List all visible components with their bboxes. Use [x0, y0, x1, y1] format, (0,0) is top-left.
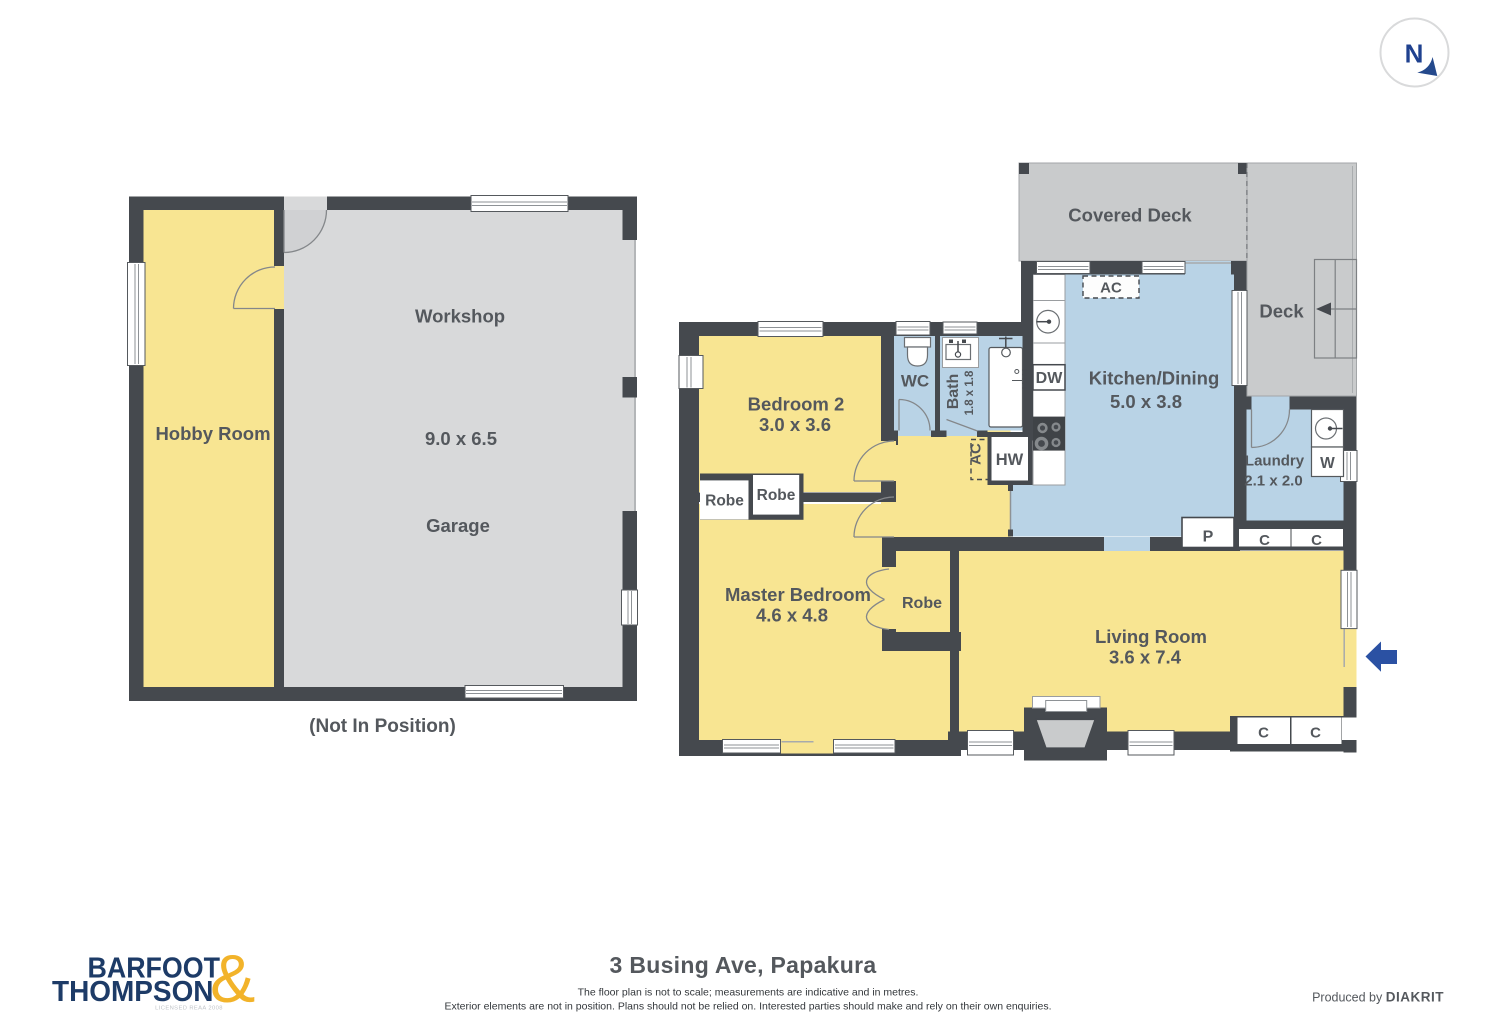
svg-text:Deck: Deck [1259, 301, 1304, 322]
svg-text:Exterior elements are not in p: Exterior elements are not in position. P… [444, 1001, 1051, 1013]
svg-text:1.8 x 1.8: 1.8 x 1.8 [964, 370, 976, 415]
svg-text:HW: HW [996, 451, 1024, 469]
svg-text:9.0 x 6.5: 9.0 x 6.5 [425, 428, 497, 449]
svg-text:LICENSED REAA 2008: LICENSED REAA 2008 [155, 1006, 223, 1012]
svg-text:3 Busing Ave, Papakura: 3 Busing Ave, Papakura [610, 952, 877, 978]
svg-text:C: C [1258, 725, 1269, 742]
svg-text:Kitchen/Dining: Kitchen/Dining [1089, 368, 1220, 389]
svg-text:C: C [1311, 532, 1322, 549]
svg-text:Master Bedroom: Master Bedroom [725, 584, 871, 605]
svg-text:Robe: Robe [902, 595, 942, 612]
svg-text:Laundry: Laundry [1245, 453, 1305, 470]
svg-text:THOMPSON: THOMPSON [52, 976, 214, 1008]
svg-text:3.0 x 3.6: 3.0 x 3.6 [759, 414, 831, 435]
svg-text:AC: AC [968, 443, 985, 465]
svg-text:Garage: Garage [426, 515, 490, 536]
svg-text:AC: AC [1100, 280, 1122, 297]
svg-text:Robe: Robe [757, 487, 796, 504]
svg-text:N: N [1405, 39, 1424, 69]
svg-text:3.6 x 7.4: 3.6 x 7.4 [1109, 647, 1182, 668]
svg-text:2.1 x 2.0: 2.1 x 2.0 [1244, 473, 1302, 490]
svg-text:C: C [1259, 532, 1270, 549]
svg-text:P: P [1203, 529, 1214, 546]
svg-text:W: W [1320, 455, 1335, 472]
svg-text:(Not In Position): (Not In Position) [309, 716, 456, 737]
svg-text:4.6 x 4.8: 4.6 x 4.8 [756, 605, 828, 626]
svg-text:Produced by DIAKRIT: Produced by DIAKRIT [1312, 990, 1444, 1005]
svg-text:Workshop: Workshop [415, 306, 505, 327]
svg-text:DW: DW [1036, 370, 1064, 387]
svg-text:Covered Deck: Covered Deck [1068, 205, 1192, 226]
svg-text:Bedroom 2: Bedroom 2 [748, 394, 845, 415]
svg-text:Hobby Room: Hobby Room [155, 423, 270, 444]
svg-text:Living Room: Living Room [1095, 626, 1207, 647]
svg-text:WC: WC [901, 372, 929, 391]
svg-text:Bath: Bath [945, 374, 962, 410]
svg-text:Robe: Robe [705, 493, 744, 510]
svg-text:C: C [1310, 725, 1321, 742]
svg-text:5.0 x 3.8: 5.0 x 3.8 [1110, 391, 1182, 412]
svg-text:The floor plan is not to scale: The floor plan is not to scale; measurem… [578, 987, 919, 999]
